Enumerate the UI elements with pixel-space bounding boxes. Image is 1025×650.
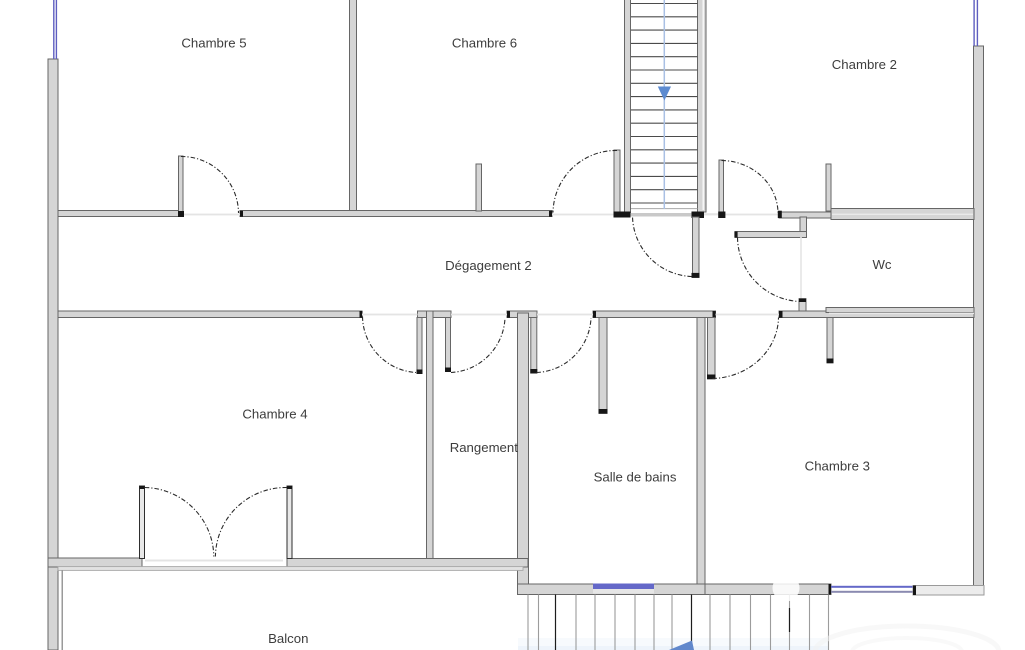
svg-text:Dégagement 2: Dégagement 2 <box>445 258 532 273</box>
svg-text:Balcon: Balcon <box>268 631 308 646</box>
svg-text:Wc: Wc <box>872 257 891 272</box>
svg-text:Chambre 3: Chambre 3 <box>805 459 870 474</box>
svg-text:Salle de bains: Salle de bains <box>594 470 677 485</box>
svg-text:Chambre 5: Chambre 5 <box>181 36 246 51</box>
svg-text:Rangement: Rangement <box>450 440 519 455</box>
svg-text:Chambre 2: Chambre 2 <box>832 57 897 72</box>
svg-text:Chambre 4: Chambre 4 <box>242 407 307 422</box>
svg-text:Chambre 6: Chambre 6 <box>452 36 517 51</box>
